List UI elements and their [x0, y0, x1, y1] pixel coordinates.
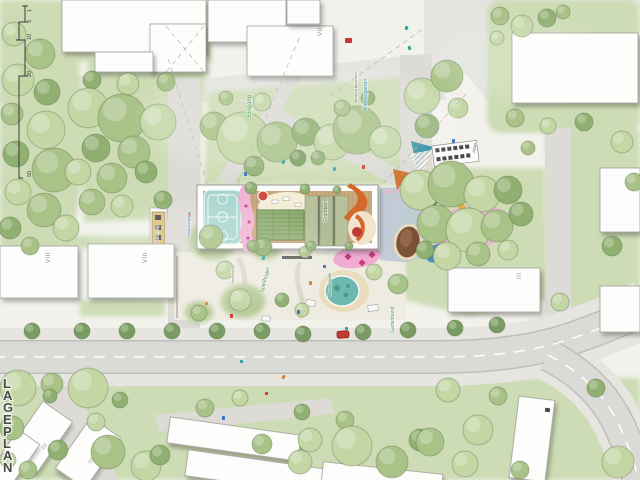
tree [332, 426, 372, 466]
tree [98, 94, 146, 142]
tree [43, 389, 57, 403]
building [150, 24, 206, 72]
tree [245, 182, 257, 194]
tree [481, 210, 513, 242]
tree [298, 428, 322, 452]
plan-title-vertical: LAGEPLAN [3, 376, 14, 475]
tree [494, 176, 522, 204]
person-marker [265, 392, 268, 395]
parked-car [337, 331, 349, 339]
tree [416, 428, 444, 456]
tree [48, 440, 68, 460]
tree [150, 445, 170, 465]
person-marker [545, 408, 550, 413]
tree [376, 446, 408, 478]
storey-label: VII [318, 27, 324, 36]
building [95, 52, 153, 72]
tree [355, 324, 371, 340]
tree [65, 159, 91, 185]
tree [345, 242, 353, 250]
tree [27, 111, 65, 149]
tree [602, 446, 634, 478]
annotation-label: Wasserspiel [327, 273, 332, 297]
tree [0, 217, 21, 239]
site-plan-drawing: EingangKlettergartenBestand BaumhainGrün… [0, 0, 640, 480]
tree [19, 461, 37, 479]
person-marker [452, 139, 455, 143]
tree [625, 173, 640, 191]
tree [466, 242, 490, 266]
tree [611, 131, 633, 153]
annotation-label: Eingang [247, 95, 253, 117]
tree [416, 241, 434, 259]
tree [254, 323, 270, 339]
tree [3, 141, 29, 167]
tree [1, 103, 23, 125]
tree [21, 237, 39, 255]
tree [551, 293, 569, 311]
tree [191, 305, 207, 321]
tree [24, 323, 40, 339]
scale-number: 50 [27, 171, 33, 177]
annotation-label: Bestand Baumhain [354, 72, 358, 102]
tree [34, 79, 60, 105]
person-marker [309, 281, 312, 285]
play-house [368, 304, 379, 311]
tree [68, 368, 108, 408]
tree [119, 323, 135, 339]
tree [87, 413, 105, 431]
annotation-label: Klettergarten [363, 79, 369, 111]
person-marker [240, 360, 243, 363]
building [600, 286, 640, 332]
tree [489, 317, 505, 333]
building [287, 0, 320, 24]
tree [111, 195, 133, 217]
plan-title-letter: N [3, 460, 13, 475]
tree [587, 379, 605, 397]
tree [5, 179, 31, 205]
person-marker [345, 327, 348, 330]
tree [295, 326, 311, 342]
tree [232, 390, 248, 406]
tree [366, 264, 382, 280]
tree [97, 163, 127, 193]
storey-label: III [517, 272, 523, 279]
tree [2, 64, 34, 96]
tree [400, 322, 416, 338]
storey-label: VIII [46, 252, 52, 263]
annotation-label: Anlieferung [155, 225, 159, 243]
person-marker [345, 38, 352, 43]
tree [164, 323, 180, 339]
person-marker [244, 172, 247, 176]
roof-red-dot [258, 191, 268, 201]
tree [25, 39, 55, 69]
tree [82, 134, 110, 162]
play-house [262, 316, 270, 321]
tree [112, 392, 128, 408]
tree [511, 461, 529, 479]
tree [506, 109, 524, 127]
tree [74, 323, 90, 339]
building [448, 268, 540, 312]
tree [556, 5, 570, 19]
person-marker [297, 310, 300, 314]
annotation-label: Sandspiel [231, 268, 235, 284]
annotation-label: Gartenband [390, 306, 396, 333]
tree [53, 215, 79, 241]
scale-number: 1 [27, 9, 33, 12]
tree [452, 451, 478, 477]
tree [521, 141, 535, 155]
scale-number: 5 [27, 20, 33, 23]
tree [388, 274, 408, 294]
tree [491, 7, 509, 25]
tree [436, 378, 460, 402]
tree [154, 191, 172, 209]
annotation-label: Gründach [323, 200, 329, 222]
annotation-label: Haupteingang [186, 212, 191, 237]
tree [294, 404, 310, 420]
tree [602, 236, 622, 256]
tree [333, 186, 341, 194]
tree [79, 189, 105, 215]
tree [575, 113, 593, 131]
tree [489, 387, 507, 405]
tree [83, 71, 101, 89]
tree [288, 450, 312, 474]
tree [295, 303, 309, 317]
tree [498, 240, 518, 260]
tree [463, 415, 493, 445]
tree [209, 323, 225, 339]
person-marker [323, 265, 326, 268]
tree [300, 184, 310, 194]
tree [196, 399, 214, 417]
tree [2, 22, 26, 46]
tree [447, 320, 463, 336]
storey-label: VIII [143, 252, 149, 263]
person-marker [222, 416, 225, 420]
scale-number: 20 [27, 71, 33, 77]
tree [135, 161, 157, 183]
tree [509, 202, 533, 226]
tree [117, 73, 139, 95]
scale-number: 10 [27, 34, 33, 40]
tree [91, 435, 125, 469]
tree [275, 293, 289, 307]
site-plan-sheet: EingangKlettergartenBestand BaumhainGrün… [0, 0, 640, 480]
building [0, 246, 78, 298]
tree [540, 118, 556, 134]
tree [433, 242, 461, 270]
tree [252, 434, 272, 454]
